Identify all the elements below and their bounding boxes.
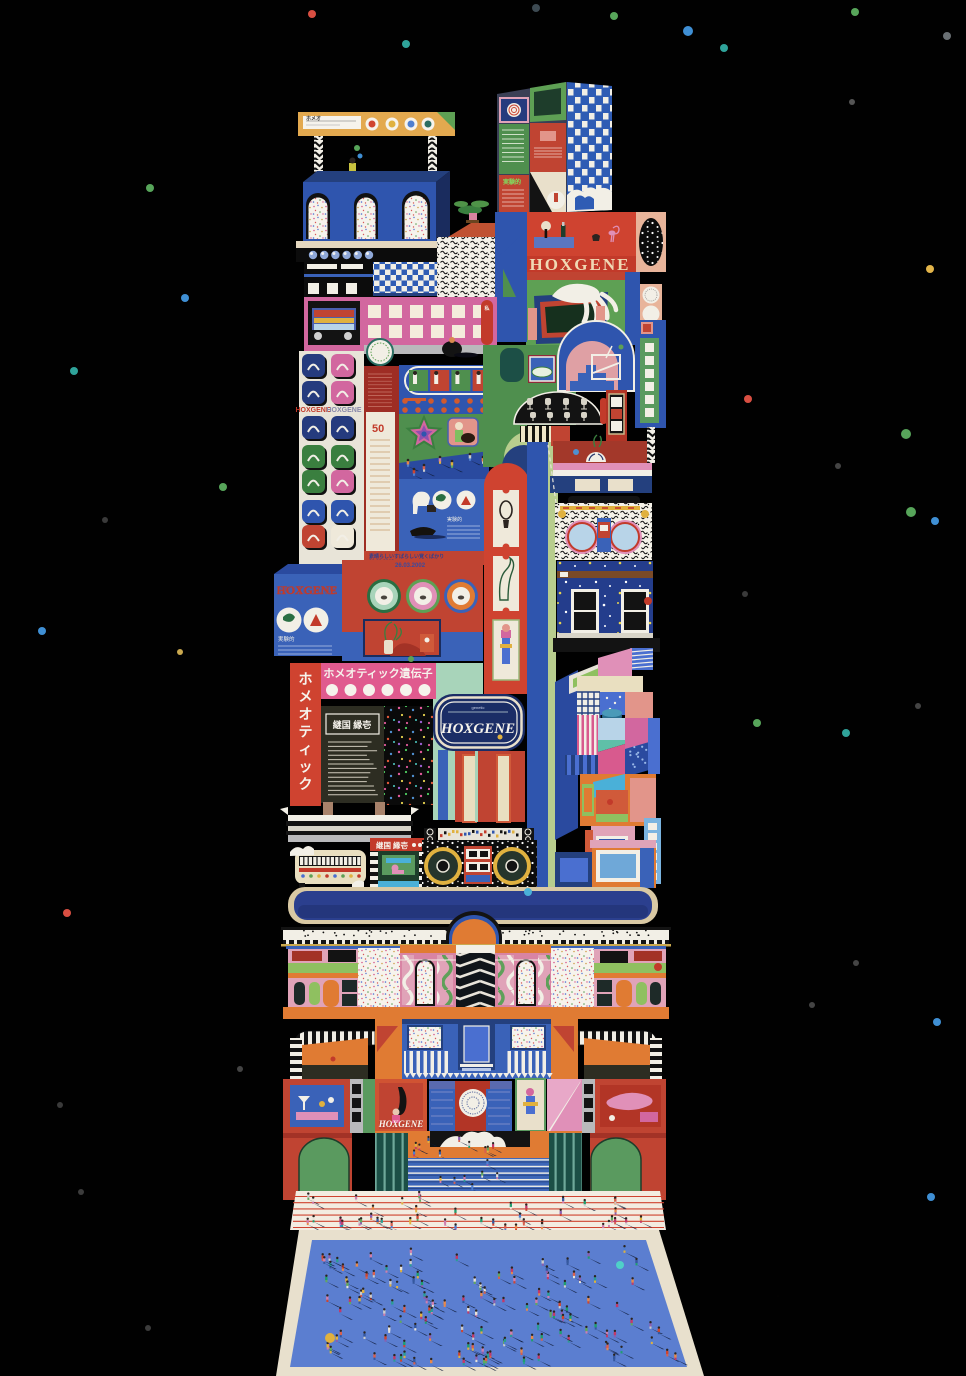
svg-text:ク: ク [299,776,313,792]
svg-text:ッ: ッ [299,759,313,775]
svg-text:実験的: 実験的 [447,516,462,523]
svg-text:実験的: 実験的 [278,635,295,643]
svg-text:HOXGENE: HOXGENE [326,407,361,414]
svg-text:ホメオティック遺伝子: ホメオティック遺伝子 [323,666,432,680]
svg-text:継国 縁壱: 継国 縁壱 [376,840,409,850]
svg-text:ホメオ: ホメオ [306,115,321,122]
svg-text:genetic: genetic [472,705,485,710]
svg-text:継国 縁壱: 継国 縁壱 [333,719,372,730]
svg-text:HOXGENE: HOXGENE [276,583,336,597]
svg-text:ホ: ホ [299,671,313,687]
svg-text:HOXGENE: HOXGENE [530,255,631,274]
svg-text:HOXGENE: HOXGENE [378,1119,424,1129]
svg-text:メ: メ [299,689,313,705]
svg-text:私: 私 [483,305,489,312]
svg-text:ィ: ィ [299,741,313,757]
svg-text:50: 50 [372,423,384,435]
svg-text:オ: オ [299,706,313,722]
svg-text:テ: テ [299,724,313,740]
svg-text:実験的: 実験的 [503,178,521,186]
svg-text:26.03.2002: 26.03.2002 [395,563,426,569]
svg-text:HOXGENE: HOXGENE [440,721,515,737]
